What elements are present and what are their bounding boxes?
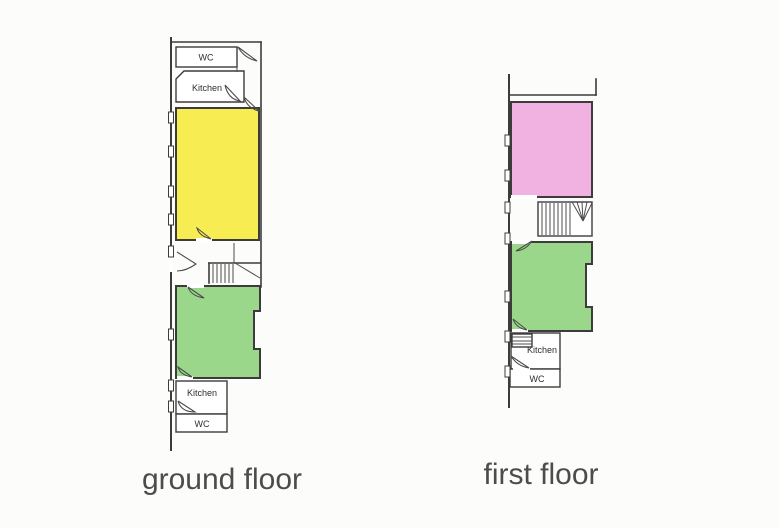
window-mark: [169, 112, 174, 123]
window-mark: [169, 146, 174, 157]
window-mark: [169, 329, 174, 340]
window-mark: [169, 380, 174, 391]
rear-room-green: [511, 242, 592, 331]
window-mark: [505, 233, 510, 244]
door-arc: [238, 47, 257, 61]
wc-room-label: WC: [530, 374, 545, 384]
window-mark: [505, 291, 510, 302]
first-floor-caption: first floor: [483, 458, 598, 491]
reception-room-yellow: [176, 108, 259, 240]
bedroom-pink: [511, 102, 592, 197]
ground-floor-caption: ground floor: [142, 463, 302, 496]
window-mark: [505, 135, 510, 146]
kitchen-room-bottom-label: Kitchen: [187, 388, 217, 398]
window-mark: [505, 170, 510, 181]
wc-room-bottom-label: WC: [195, 419, 210, 429]
window-mark: [169, 214, 174, 225]
front-door-arc: [177, 252, 196, 271]
staircase-ground: [209, 243, 260, 283]
floorplan-svg: WC Kitchen: [0, 0, 778, 528]
wc-room-top-label: WC: [199, 53, 214, 63]
stair-break-line: [235, 263, 260, 278]
kitchen-room-label: Kitchen: [527, 345, 557, 355]
window-mark: [169, 246, 174, 257]
floor-plans-page: WC Kitchen: [0, 0, 778, 528]
window-mark: [505, 202, 510, 213]
window-mark: [505, 331, 510, 342]
ground-floor-plan: WC Kitchen: [169, 38, 262, 450]
window-mark: [169, 186, 174, 197]
kitchen-room-top-label: Kitchen: [192, 83, 222, 93]
window-mark: [505, 366, 510, 377]
window-mark: [169, 401, 174, 412]
first-floor-plan: Kitchen WC: [505, 75, 596, 407]
staircase-first: [538, 202, 592, 236]
rear-room-green: [176, 286, 260, 378]
